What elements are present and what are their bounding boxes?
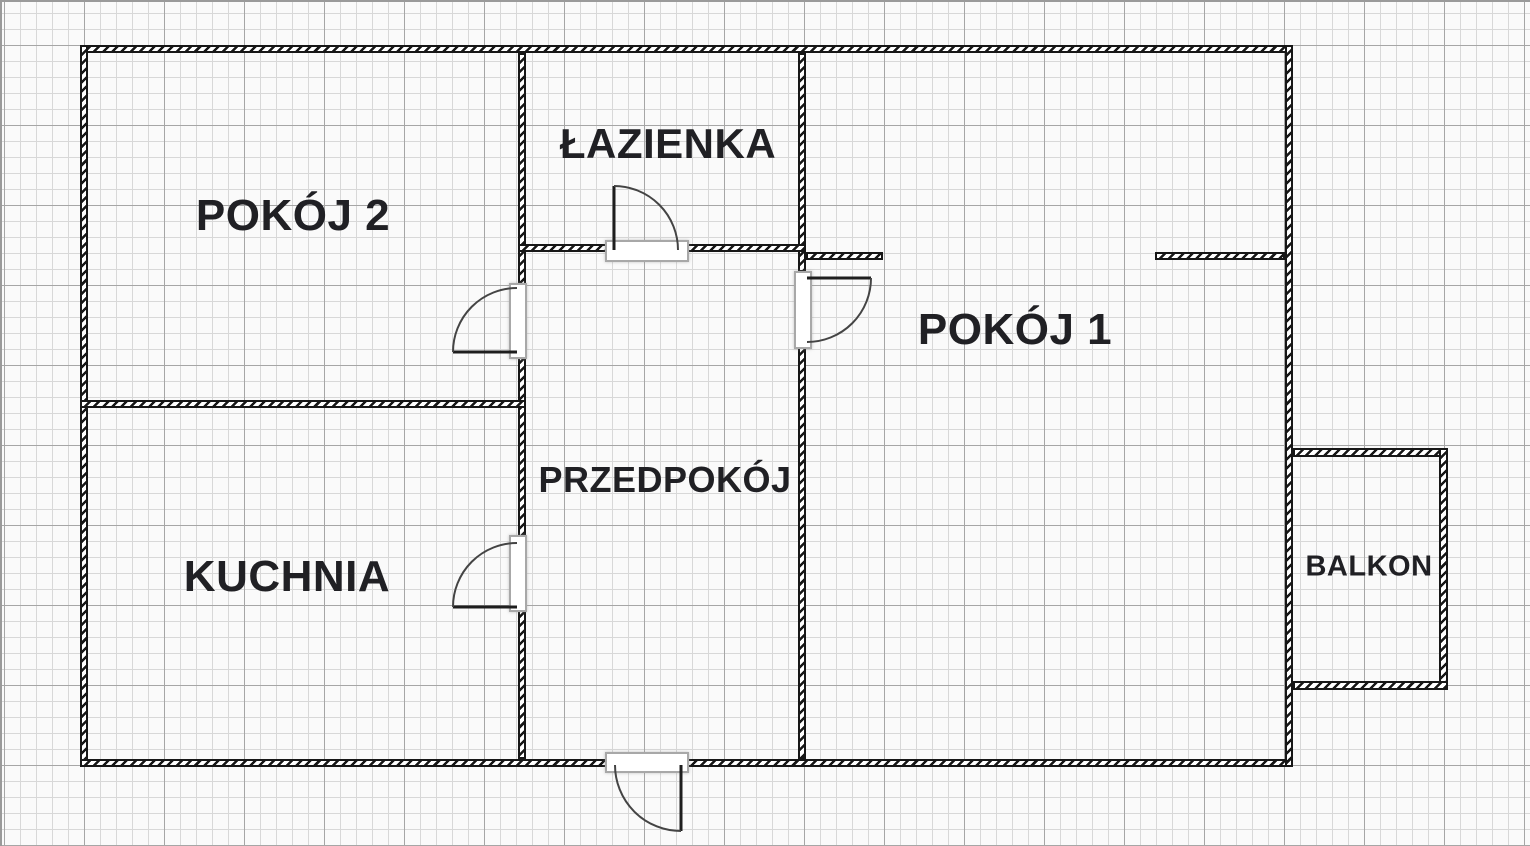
wall-balcony-top (1293, 448, 1448, 457)
door-arc-pokoj2 (453, 288, 517, 352)
door-arc-pokoj1 (807, 278, 871, 342)
room-label-pokoj1: POKÓJ 1 (918, 305, 1112, 355)
door-arc-entrance (615, 765, 681, 831)
wall-balcony-right (1439, 448, 1448, 690)
wall-balcony-bottom (1293, 681, 1448, 690)
wall-bathroom-bottom-west (518, 244, 608, 252)
grid-edge-left (0, 0, 2, 846)
door-threshold-pokoj2 (509, 283, 527, 359)
room-label-przedpokoj: PRZEDPOKÓJ (538, 459, 791, 501)
door-threshold-pokoj1 (794, 271, 812, 349)
wall-stub-pokoj1-west (806, 252, 883, 260)
door-threshold-kuchnia (509, 535, 527, 612)
room-label-balkon: BALKON (1305, 551, 1432, 584)
wall-hallway-east-lower (798, 345, 806, 759)
door-threshold-bathroom (605, 240, 689, 262)
door-arc-kuchnia (453, 543, 517, 607)
wall-hallway-west-lower (518, 607, 526, 759)
wall-pokoj2-kuchnia (80, 400, 526, 408)
door-threshold-entrance (605, 752, 689, 773)
wall-hallway-west-middle (518, 353, 526, 537)
wall-bathroom-bottom-east (687, 244, 806, 252)
wall-hallway-east-upper (798, 53, 806, 272)
room-label-pokoj2: POKÓJ 2 (196, 191, 390, 241)
wall-hallway-west-upper (518, 53, 526, 288)
room-label-kuchnia: KUCHNIA (184, 552, 390, 602)
floor-plan-canvas: POKÓJ 2 ŁAZIENKA POKÓJ 1 PRZEDPOKÓJ KUCH… (0, 0, 1530, 846)
wall-outer-right (1285, 45, 1293, 767)
grid-edge-top (0, 0, 1530, 2)
room-label-lazienka: ŁAZIENKA (560, 120, 776, 168)
wall-outer-top (80, 45, 1293, 53)
wall-stub-pokoj1-east (1155, 252, 1285, 260)
